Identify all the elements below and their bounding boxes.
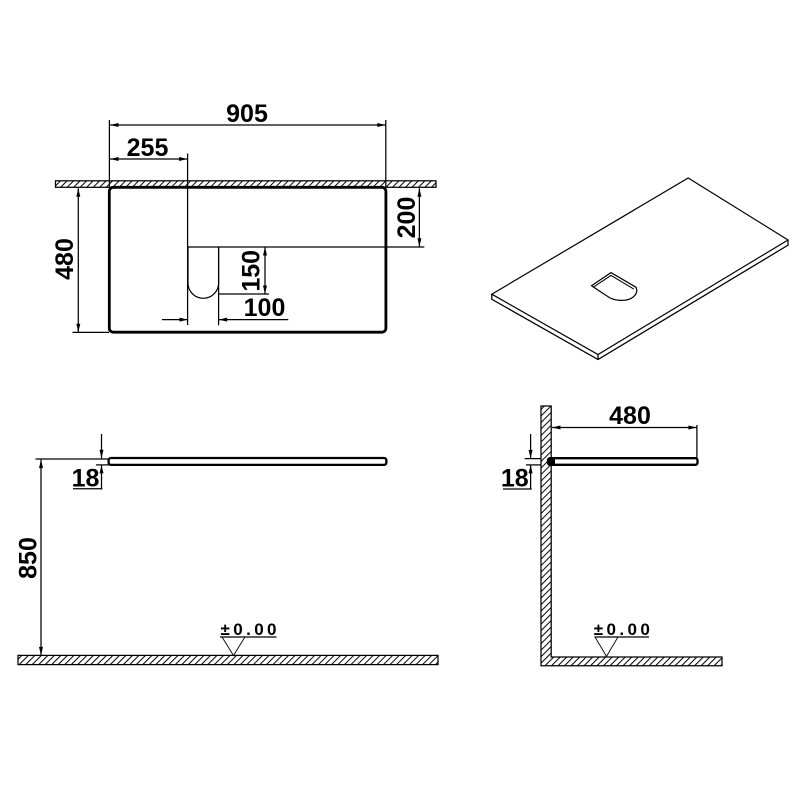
svg-text:255: 255 bbox=[127, 134, 169, 162]
svg-text:18: 18 bbox=[501, 465, 529, 493]
svg-text:150: 150 bbox=[238, 250, 266, 292]
svg-text:18: 18 bbox=[72, 465, 100, 493]
svg-text:850: 850 bbox=[15, 537, 43, 579]
svg-text:200: 200 bbox=[393, 197, 421, 239]
svg-text:±0.00: ±0.00 bbox=[594, 620, 653, 639]
svg-text:905: 905 bbox=[226, 100, 268, 128]
svg-text:±0.00: ±0.00 bbox=[220, 620, 279, 639]
svg-text:480: 480 bbox=[609, 402, 651, 430]
svg-text:480: 480 bbox=[51, 238, 79, 280]
svg-text:100: 100 bbox=[244, 294, 286, 322]
